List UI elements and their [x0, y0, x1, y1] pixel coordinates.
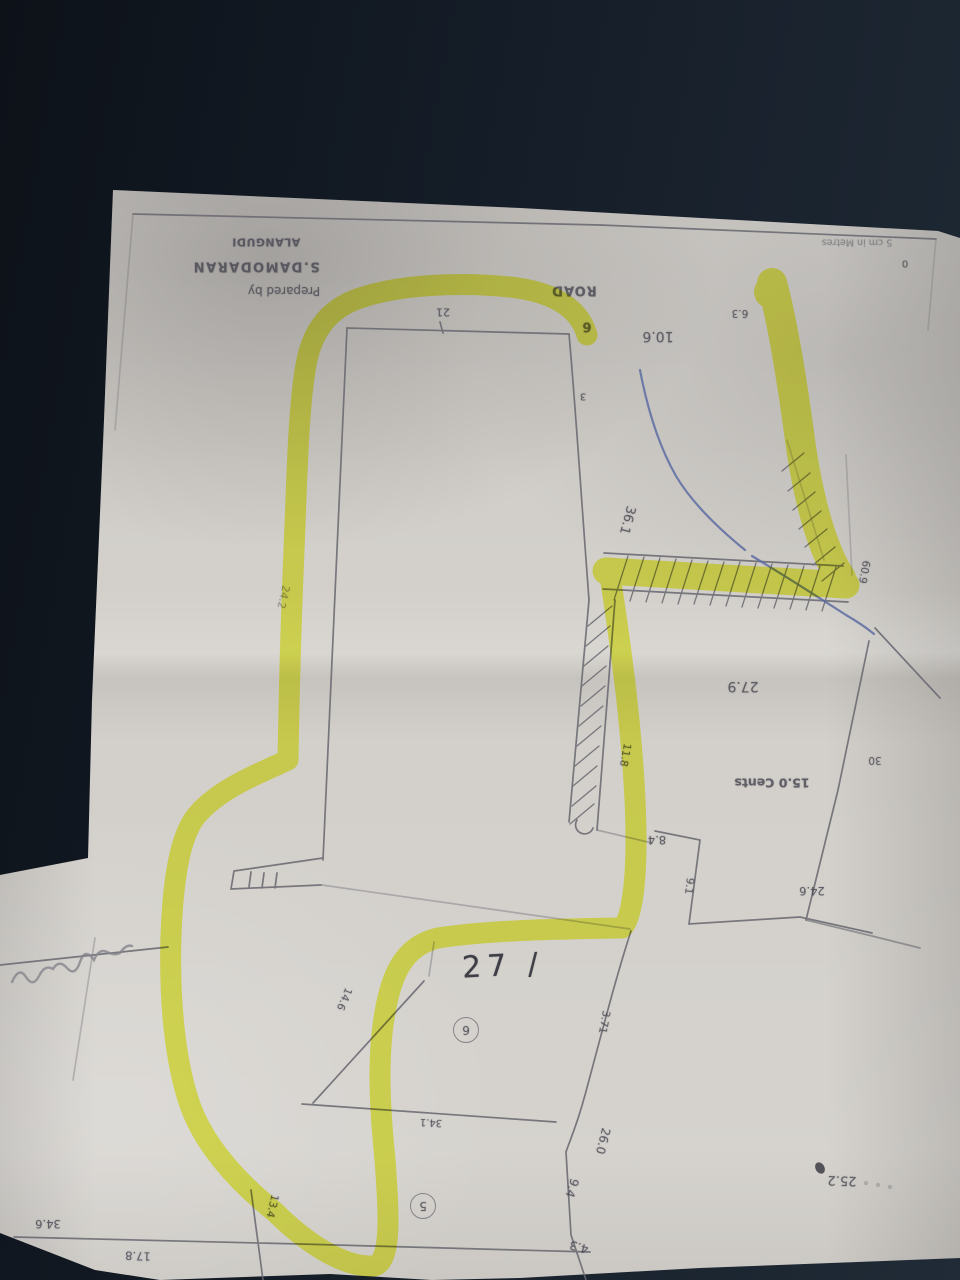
measurement-34-6: 34.6	[35, 1217, 61, 1231]
area-label: 15.0 Cents	[734, 776, 809, 791]
surveyor-name: S.DAMODARAN	[192, 259, 319, 274]
measurement-3: 3	[580, 391, 586, 402]
measurement-34-1: 34.1	[420, 1116, 443, 1128]
measurement-10-6: 10.6	[642, 328, 673, 344]
measurement-24-6: 24.6	[799, 884, 825, 898]
scale-note: 5 cm in Metres	[822, 237, 893, 248]
circled-number-6: 6	[453, 1017, 479, 1043]
measurement-30: 30	[868, 754, 881, 766]
road-label: ROAD	[551, 283, 597, 298]
survey-map-photo: ROAD Prepared by S.DAMODARAN ALANGUDI 5 …	[0, 0, 960, 1280]
measurement-13-4: 13.4	[264, 1193, 281, 1218]
measurement-36-1: 36.1	[616, 504, 638, 536]
measurement-24-2: 24.2	[275, 584, 292, 609]
measurement-11-8: 11.8	[617, 742, 633, 767]
measurement-9-1: 9.1	[682, 877, 696, 895]
measurement-14-6: 14.6	[334, 986, 354, 1012]
village-name: ALANGUDI	[232, 236, 300, 249]
measurement-6: 6	[582, 319, 591, 334]
measurement-8-4: 8.4	[648, 833, 666, 847]
measurement-25-2: 25.2	[827, 1172, 856, 1188]
measurement-9-4: 9.4	[562, 1177, 581, 1199]
measurement-27-9: 27.9	[727, 678, 758, 694]
measurement-26-0: 26.0	[593, 1126, 613, 1155]
measurement-3-71: 3.71	[596, 1009, 612, 1034]
measurement-17-8: 17.8	[125, 1249, 151, 1264]
measurement-6-3: 6.3	[732, 307, 749, 319]
plot-number-handwritten: 27 /	[461, 946, 545, 985]
measurement-60-9: 60.9	[856, 559, 872, 584]
measurement-0: 0	[902, 258, 908, 269]
measurement-21: 21	[436, 306, 450, 319]
prepared-by-label: Prepared by	[248, 284, 320, 298]
circled-number-5: 5	[410, 1193, 436, 1219]
measurement-4-3: 4.3	[568, 1238, 590, 1256]
